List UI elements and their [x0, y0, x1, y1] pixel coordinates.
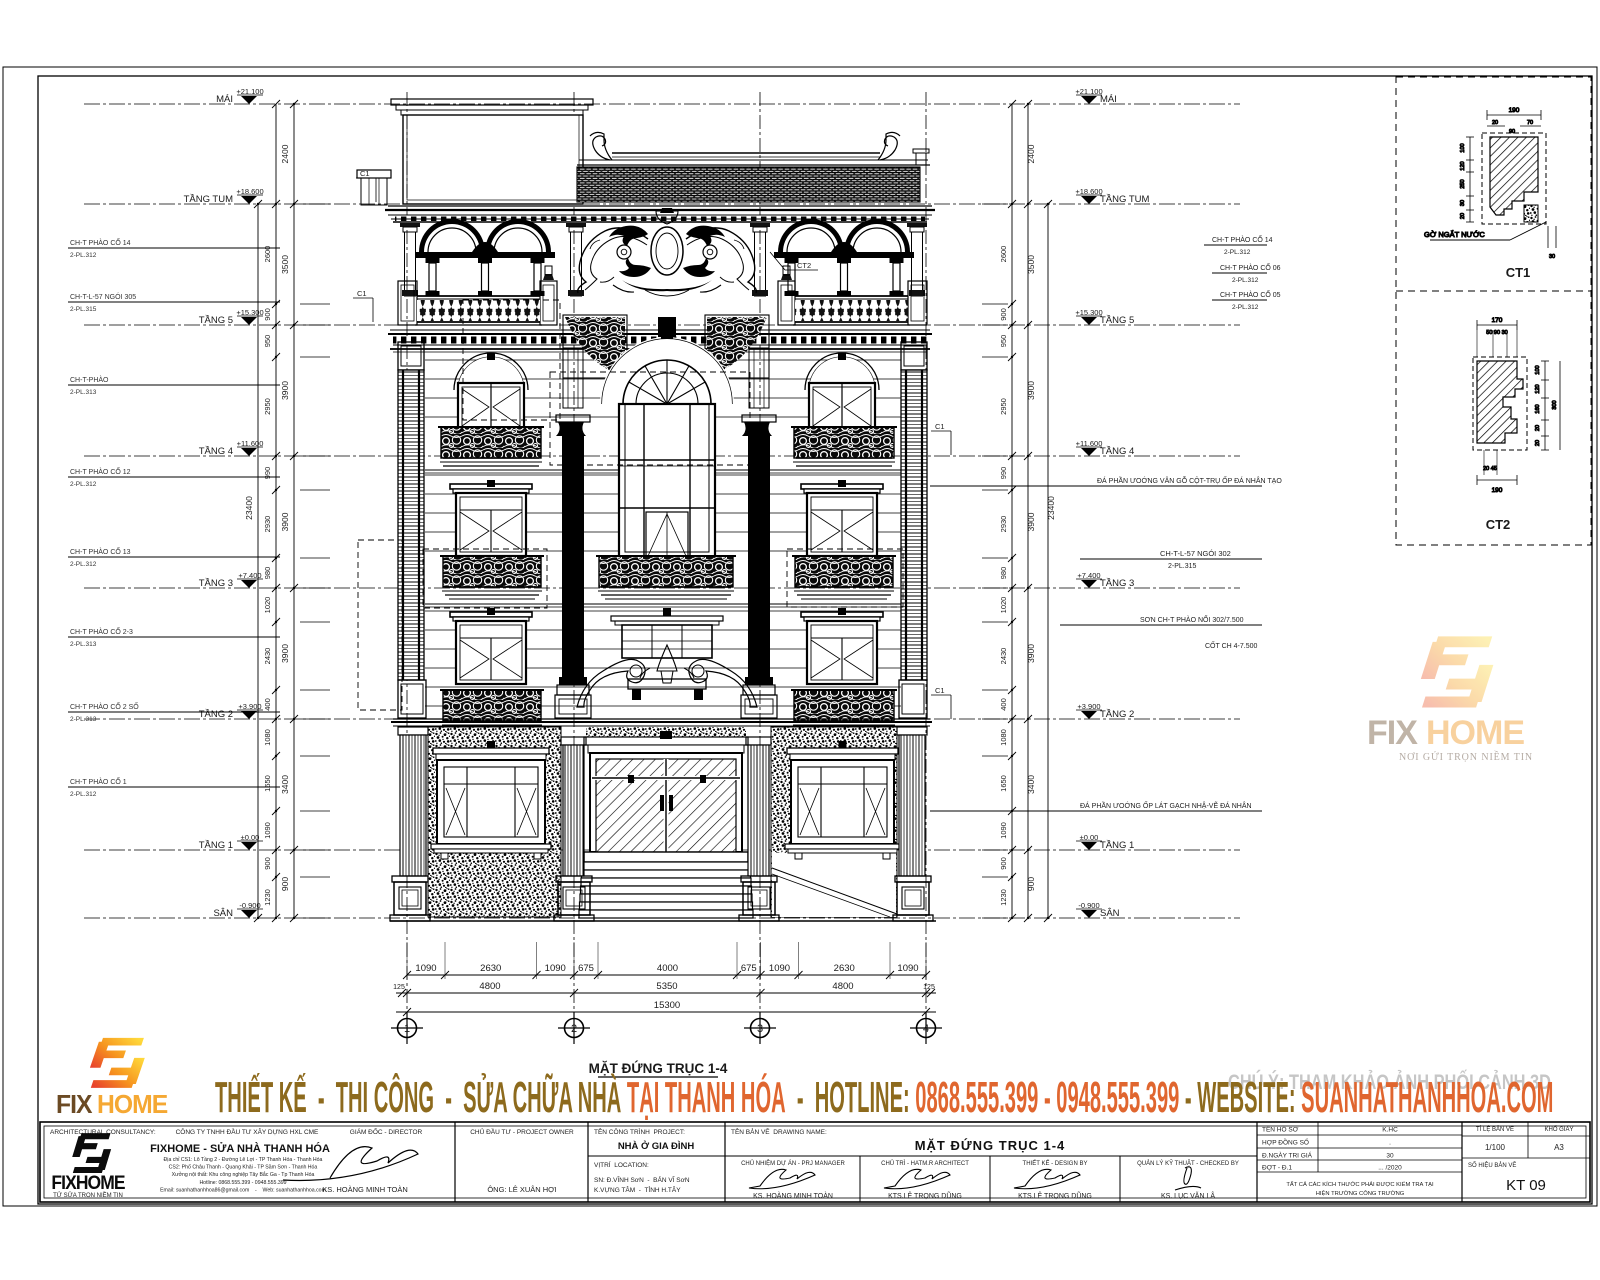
svg-text:3500: 3500 — [1026, 255, 1036, 274]
svg-text:1020: 1020 — [999, 597, 1008, 614]
svg-text:KTS.LÊ TRỌNG DŨNG: KTS.LÊ TRỌNG DŨNG — [888, 1191, 962, 1200]
svg-text:2-PL.312: 2-PL.312 — [1232, 277, 1259, 284]
svg-text:120: 120 — [1460, 161, 1466, 170]
svg-text:3900: 3900 — [1026, 512, 1036, 531]
svg-text:TẦNG 3: TẦNG 3 — [1100, 578, 1134, 589]
svg-text:TẤT CẢ CÁC KÍCH THƯỚC PHẢI ĐƯỢ: TẤT CẢ CÁC KÍCH THƯỚC PHẢI ĐƯỢC KIỂM TRA… — [1286, 1181, 1434, 1188]
svg-text:50 90 30: 50 90 30 — [1486, 330, 1507, 336]
svg-text:3900: 3900 — [1026, 381, 1036, 400]
svg-text:Địa chỉ CS1: Lô Tầng 2 - Đường: Địa chỉ CS1: Lô Tầng 2 - Đường Lê Lợi - … — [164, 1156, 323, 1163]
svg-text:2930: 2930 — [999, 516, 1008, 533]
svg-text:675: 675 — [741, 963, 757, 974]
svg-text:2-PL.315: 2-PL.315 — [1168, 563, 1197, 570]
svg-text:3900: 3900 — [280, 512, 290, 531]
svg-text:HOME: HOME — [97, 1090, 167, 1119]
svg-text:950: 950 — [999, 335, 1008, 348]
svg-text:90: 90 — [1509, 129, 1515, 135]
svg-text:TẦNG 4: TẦNG 4 — [199, 446, 233, 457]
svg-text:190: 190 — [1509, 107, 1520, 114]
svg-text:FIXHOME: FIXHOME — [51, 1171, 125, 1193]
svg-text:250: 250 — [1460, 179, 1466, 188]
svg-text:TẦNG 2: TẦNG 2 — [199, 709, 233, 720]
svg-text:MÁI: MÁI — [216, 94, 233, 105]
svg-text:TẦNG 2: TẦNG 2 — [1100, 709, 1134, 720]
svg-text:TẦNG TUM: TẦNG TUM — [1100, 194, 1150, 205]
svg-text:C1: C1 — [935, 422, 945, 431]
svg-text:2-PL.313: 2-PL.313 — [70, 641, 97, 648]
svg-text:C1: C1 — [360, 169, 370, 178]
svg-text:ÔNG: LÊ XUÂN HỢI: ÔNG: LÊ XUÂN HỢI — [487, 1185, 556, 1194]
svg-text:70: 70 — [1527, 120, 1533, 126]
svg-text:1090: 1090 — [897, 963, 918, 974]
svg-text:TỈ LỆ BẢN VẼ: TỈ LỆ BẢN VẼ — [1476, 1125, 1514, 1133]
svg-text:2-PL.312: 2-PL.312 — [1224, 249, 1251, 256]
svg-text:CH-T-PHÀO: CH-T-PHÀO — [70, 375, 109, 384]
svg-text:4000: 4000 — [657, 963, 678, 974]
svg-text:160: 160 — [1535, 404, 1541, 413]
svg-text:3900: 3900 — [280, 644, 290, 663]
svg-text:CH-T-L-57 NGÓI 302: CH-T-L-57 NGÓI 302 — [1160, 549, 1231, 558]
svg-text:30: 30 — [1386, 1153, 1394, 1160]
svg-text:3900: 3900 — [280, 381, 290, 400]
svg-text:KHỔ GIẤY: KHỔ GIẤY — [1544, 1126, 1573, 1133]
svg-text:.: . — [1389, 1140, 1391, 1147]
svg-text:2950: 2950 — [999, 398, 1008, 415]
svg-text:TẦNG 5: TẦNG 5 — [1100, 315, 1134, 326]
svg-text:TẦNG TUM: TẦNG TUM — [184, 194, 234, 205]
svg-text:2-PL.312: 2-PL.312 — [70, 791, 97, 798]
svg-text:1090: 1090 — [263, 822, 272, 839]
svg-text:2630: 2630 — [480, 963, 501, 974]
svg-text:Xưởng nội thất: Khu công nghiệ: Xưởng nội thất: Khu công nghiệp Tây Bắc … — [172, 1171, 315, 1178]
svg-text:CHỦ TRÌ - HATM.R ARCHITECT: CHỦ TRÌ - HATM.R ARCHITECT — [881, 1160, 969, 1167]
svg-text:1230: 1230 — [263, 889, 272, 906]
svg-text:1/100: 1/100 — [1485, 1143, 1506, 1152]
svg-text:190: 190 — [1492, 487, 1503, 494]
svg-text:MẶT ĐỨNG TRỤC 1-4: MẶT ĐỨNG TRỤC 1-4 — [915, 1138, 1066, 1153]
svg-text:20: 20 — [1535, 425, 1541, 431]
svg-text:HOME: HOME — [1426, 714, 1524, 752]
svg-text:100: 100 — [1460, 143, 1466, 152]
svg-text:GỜ NGẮT NƯỚC: GỜ NGẮT NƯỚC — [1424, 230, 1485, 239]
svg-text:CH-T PHÀO CỔ 14: CH-T PHÀO CỔ 14 — [70, 238, 131, 247]
svg-text:TÊN BẢN VẼ DRAWING NAME:: TÊN BẢN VẼ DRAWING NAME: — [731, 1127, 827, 1136]
svg-text:2950: 2950 — [263, 398, 272, 415]
svg-text:FIXHOME - SỬA NHÀ THANH HÓA: FIXHOME - SỬA NHÀ THANH HÓA — [150, 1142, 330, 1155]
svg-text:NƠI GỬI TRỌN NIỀM TIN: NƠI GỬI TRỌN NIỀM TIN — [1399, 750, 1533, 763]
svg-text:2400: 2400 — [1026, 144, 1036, 163]
svg-text:CT1: CT1 — [1506, 265, 1531, 280]
svg-text:2-PL.312: 2-PL.312 — [70, 481, 97, 488]
svg-text:TẦNG 4: TẦNG 4 — [1100, 446, 1134, 457]
svg-text:CH-T PHÀO CỔ 06: CH-T PHÀO CỔ 06 — [1220, 263, 1281, 272]
svg-text:CH-T-L-57 NGÓI 305: CH-T-L-57 NGÓI 305 — [70, 292, 136, 301]
svg-text:CH-T PHÀO CỔ 05: CH-T PHÀO CỔ 05 — [1220, 290, 1281, 299]
svg-text:4: 4 — [923, 1023, 929, 1035]
svg-text:3400: 3400 — [1026, 775, 1036, 794]
svg-text:CT2: CT2 — [1486, 517, 1511, 532]
svg-text:SỐ HIỆU BẢN VẼ: SỐ HIỆU BẢN VẼ — [1468, 1161, 1516, 1169]
svg-text:3900: 3900 — [1026, 644, 1036, 663]
svg-text:2-PL.313: 2-PL.313 — [70, 389, 97, 396]
svg-text:980: 980 — [999, 567, 1008, 580]
svg-text:900: 900 — [1026, 877, 1036, 891]
svg-text:SƠN CH-T PHÀO NỔI 302/7.500: SƠN CH-T PHÀO NỔI 302/7.500 — [1140, 615, 1244, 624]
svg-text:HIỆN TRƯỜNG CÔNG TRƯỜNG: HIỆN TRƯỜNG CÔNG TRƯỜNG — [1316, 1189, 1405, 1197]
svg-text:2930: 2930 — [263, 516, 272, 533]
svg-text:5350: 5350 — [656, 981, 677, 992]
svg-text:2-PL.312: 2-PL.312 — [70, 561, 97, 568]
svg-text:KTS.LÊ TRỌNG DŨNG: KTS.LÊ TRỌNG DŨNG — [1018, 1191, 1092, 1200]
svg-text:1650: 1650 — [999, 775, 1008, 792]
svg-text:950: 950 — [263, 335, 272, 348]
svg-text:900: 900 — [999, 308, 1008, 321]
svg-text:2400: 2400 — [280, 144, 290, 163]
svg-text:TẦNG 1: TẦNG 1 — [199, 840, 233, 851]
svg-text:K.HC: K.HC — [1382, 1127, 1398, 1134]
svg-text:900: 900 — [263, 308, 272, 321]
svg-text:KS. HOÀNG MINH TOÀN: KS. HOÀNG MINH TOÀN — [322, 1185, 408, 1194]
svg-text:1090: 1090 — [999, 822, 1008, 839]
svg-text:1230: 1230 — [999, 889, 1008, 906]
svg-text:TẦNG 5: TẦNG 5 — [199, 315, 233, 326]
svg-text:1080: 1080 — [999, 729, 1008, 746]
svg-text:400: 400 — [999, 698, 1008, 711]
svg-text:SÂN: SÂN — [1100, 908, 1120, 919]
svg-text:1090: 1090 — [545, 963, 566, 974]
svg-text:TẦNG 3: TẦNG 3 — [199, 578, 233, 589]
svg-text:125: 125 — [923, 984, 935, 991]
svg-text:1650: 1650 — [263, 775, 272, 792]
svg-text:CHỦ NHIỆM DỰ ÁN - PRJ MANAGER: CHỦ NHIỆM DỰ ÁN - PRJ MANAGER — [741, 1159, 845, 1167]
svg-text:2: 2 — [571, 1023, 577, 1035]
svg-text:FIX: FIX — [56, 1090, 93, 1119]
svg-text:1020: 1020 — [263, 597, 272, 614]
svg-text:THIẾT KẾ - DESIGN BY: THIẾT KẾ - DESIGN BY — [1023, 1160, 1088, 1167]
svg-text:2630: 2630 — [834, 963, 855, 974]
svg-text:900: 900 — [999, 857, 1008, 870]
svg-text:20: 20 — [1535, 440, 1541, 446]
svg-text:2-PL.313: 2-PL.313 — [70, 716, 97, 723]
svg-text:2600: 2600 — [999, 246, 1008, 263]
svg-text:Email: suanhathanhhoa86@gmail.: Email: suanhathanhhoa86@gmail.com - Web:… — [160, 1187, 326, 1193]
svg-text:TẦNG 1: TẦNG 1 — [1100, 840, 1134, 851]
svg-text:TÊN CÔNG TRÌNH PROJECT:: TÊN CÔNG TRÌNH PROJECT: — [594, 1127, 685, 1136]
svg-text:2430: 2430 — [999, 648, 1008, 665]
svg-text:20 45: 20 45 — [1483, 466, 1497, 472]
svg-text:Hotline: 0868.555.399 - 0948.5: Hotline: 0868.555.399 - 0948.555.399 — [199, 1180, 286, 1186]
svg-text:NHÀ Ở GIA ĐÌNH: NHÀ Ở GIA ĐÌNH — [618, 1140, 695, 1152]
svg-text:900: 900 — [263, 857, 272, 870]
svg-text:20: 20 — [1460, 213, 1466, 219]
svg-text:990: 990 — [999, 467, 1008, 480]
svg-text:CH-T PHÀO CỔ 1: CH-T PHÀO CỔ 1 — [70, 777, 127, 786]
svg-text:TỬ SỬA TRỌN NIỀM TIN: TỬ SỬA TRỌN NIỀM TIN — [53, 1192, 123, 1199]
svg-text:CS2: Phố Châu Thanh - Quang Kh: CS2: Phố Châu Thanh - Quang Khải - TP Sầ… — [169, 1165, 318, 1171]
svg-text:SN: Đ.VĨNH SơN - BẢN VĨ SơN: SN: Đ.VĨNH SơN - BẢN VĨ SơN — [594, 1175, 690, 1184]
svg-text:Đ.NGÀY TRI GIÁ: Đ.NGÀY TRI GIÁ — [1262, 1151, 1313, 1160]
svg-text:CT2: CT2 — [797, 261, 811, 270]
svg-text:23400: 23400 — [244, 496, 254, 520]
svg-text:CH-T PHÀO CỔ 14: CH-T PHÀO CỔ 14 — [1212, 235, 1273, 244]
svg-text:120: 120 — [1535, 384, 1541, 393]
svg-text:SÂN: SÂN — [213, 908, 233, 919]
svg-text:ĐỢT - Đ.1: ĐỢT - Đ.1 — [1262, 1165, 1292, 1172]
svg-text:900: 900 — [280, 877, 290, 891]
svg-text:3400: 3400 — [280, 775, 290, 794]
svg-text:1090: 1090 — [415, 963, 436, 974]
svg-text:K.VỰNG TÂM - TỈNH H.TÂY: K.VỰNG TÂM - TỈNH H.TÂY — [594, 1185, 681, 1194]
svg-text:1080: 1080 — [263, 729, 272, 746]
svg-text:400: 400 — [263, 698, 272, 711]
svg-text:VỊTRÍ LOCATION:: VỊTRÍ LOCATION: — [594, 1160, 649, 1169]
svg-text:170: 170 — [1492, 317, 1503, 324]
svg-text:15300: 15300 — [654, 1000, 680, 1011]
svg-text:KS. HOÀNG MINH TOÀN: KS. HOÀNG MINH TOÀN — [753, 1191, 833, 1200]
svg-text:QUẢN LÝ KỸ THUẬT - CHECKED BY: QUẢN LÝ KỸ THUẬT - CHECKED BY — [1137, 1160, 1239, 1167]
svg-text:1090: 1090 — [769, 963, 790, 974]
svg-text:3: 3 — [757, 1023, 763, 1035]
svg-text:2430: 2430 — [263, 648, 272, 665]
svg-text:FIX: FIX — [1367, 714, 1418, 752]
svg-text:30: 30 — [1460, 200, 1466, 206]
svg-text:CH-T PHÀO CỔ 12: CH-T PHÀO CỔ 12 — [70, 467, 131, 476]
svg-text:3500: 3500 — [280, 255, 290, 274]
svg-text:CH-T PHÀO CỔ 2-3: CH-T PHÀO CỔ 2-3 — [70, 627, 133, 636]
svg-text:THIẾT KẾ - THI CÔNG - SỬA: THIẾT KẾ - THI CÔNG - SỬA CHỮA NHÀ TẠI T… — [215, 1071, 1553, 1122]
svg-text:675: 675 — [578, 963, 594, 974]
svg-text:100: 100 — [1535, 365, 1541, 374]
svg-text:2-PL.312: 2-PL.312 — [1232, 304, 1259, 311]
svg-text:KT 09: KT 09 — [1506, 1177, 1546, 1194]
svg-text:30: 30 — [1549, 254, 1555, 260]
svg-text:2-PL.312: 2-PL.312 — [70, 252, 97, 259]
svg-text:1: 1 — [404, 1023, 410, 1035]
svg-text:C1: C1 — [357, 289, 367, 298]
svg-text:20: 20 — [1492, 120, 1498, 126]
svg-text:2-PL.315: 2-PL.315 — [70, 306, 97, 313]
svg-text:125: 125 — [393, 984, 405, 991]
svg-text:... /2020: ... /2020 — [1378, 1165, 1402, 1172]
svg-text:A3: A3 — [1554, 1143, 1564, 1152]
svg-text:300: 300 — [1552, 400, 1558, 409]
svg-text:23400: 23400 — [1046, 496, 1056, 520]
svg-text:980: 980 — [263, 567, 272, 580]
svg-text:C1: C1 — [935, 686, 945, 695]
svg-text:4800: 4800 — [479, 981, 500, 992]
svg-text:KS. LỤC VĂN LÂ: KS. LỤC VĂN LÂ — [1161, 1191, 1215, 1200]
svg-text:4800: 4800 — [832, 981, 853, 992]
svg-text:CH-T PHÀO CỔ 13: CH-T PHÀO CỔ 13 — [70, 547, 131, 556]
